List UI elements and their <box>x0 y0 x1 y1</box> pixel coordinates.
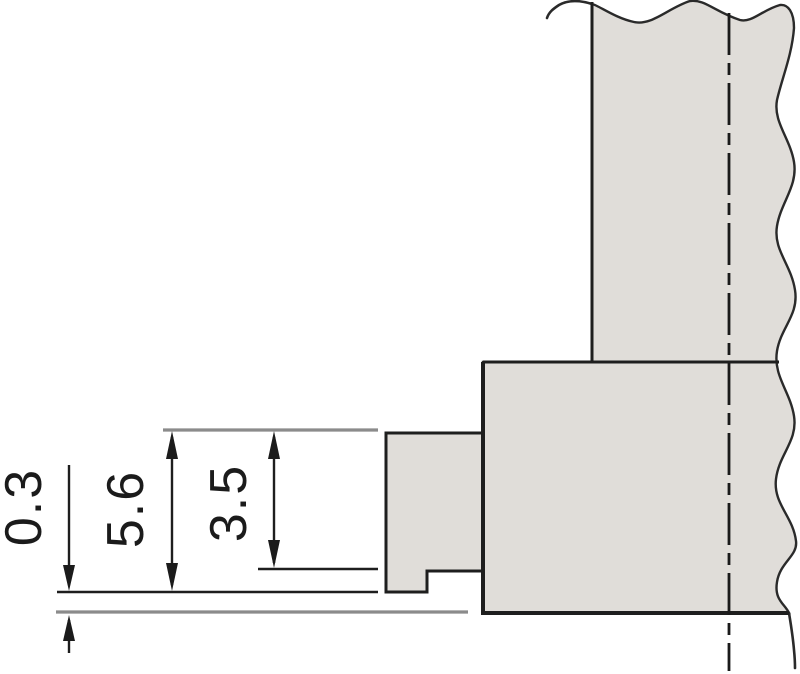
dimension-3-5: 3.5 <box>200 431 280 568</box>
diagram-canvas: 0.3 5.6 3.5 <box>0 0 800 674</box>
dim-5-6-arrow-down-icon <box>166 563 178 591</box>
technical-drawing-svg: 0.3 5.6 3.5 <box>0 0 800 674</box>
top-break-line-tail-icon <box>547 1 592 18</box>
right-break-line-tail-icon <box>789 613 795 668</box>
dim-3-5-label: 3.5 <box>200 464 258 542</box>
dimension-0-3: 0.3 <box>0 465 75 653</box>
dim-0-3-arrow-up-icon <box>63 615 75 641</box>
dim-3-5-arrow-up-icon <box>268 431 280 459</box>
dim-0-3-arrow-down-icon <box>63 565 75 591</box>
dim-3-5-arrow-down-icon <box>268 540 280 568</box>
dimension-5-6: 5.6 <box>97 431 178 591</box>
dim-5-6-arrow-up-icon <box>166 431 178 459</box>
dim-0-3-label: 0.3 <box>0 468 53 546</box>
dim-5-6-label: 5.6 <box>97 470 155 548</box>
